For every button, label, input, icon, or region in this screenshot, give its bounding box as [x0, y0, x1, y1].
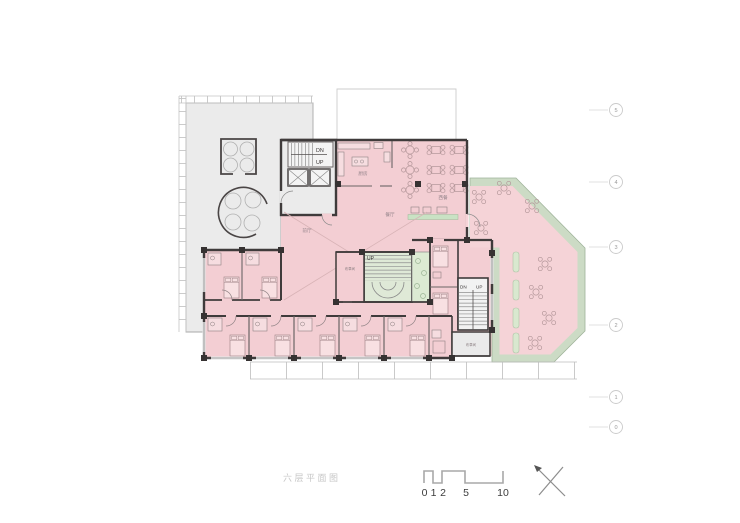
grid-bubble-label: 0: [614, 425, 617, 431]
service-room-right-label: 布草间: [466, 342, 477, 347]
grid-bubble-0: 0: [589, 421, 623, 434]
central-stair-up-label: UP: [367, 256, 375, 262]
upper-void-outline: [337, 89, 456, 140]
service-room-center: [336, 252, 364, 302]
grid-bubble-label: 4: [614, 180, 617, 186]
restaurant-label: 餐厅: [385, 211, 395, 218]
elevator-1: [288, 169, 308, 186]
floor-plan-sheet: DN UP 厨房: [0, 0, 740, 523]
central-stair-block: UP 布草间: [336, 252, 430, 303]
right-stair-dn-label: DN: [460, 285, 467, 290]
elevator-2: [310, 169, 330, 186]
grid-bubble-3: 3: [589, 241, 623, 254]
service-room-right: 布草间: [452, 332, 490, 356]
top-stair-up-label: UP: [316, 160, 324, 166]
grid-bubble-label: 1: [614, 395, 617, 401]
scale-tick-5: 5: [463, 487, 469, 499]
grid-bubbles: 5 4 3 2 1 0: [589, 104, 623, 434]
right-stair-up-label: UP: [476, 285, 482, 290]
drawing-title: 六层平面图: [283, 472, 341, 483]
grid-bubble-4: 4: [589, 176, 623, 189]
floor-plan-svg: DN UP 厨房: [0, 0, 740, 523]
top-stair-dn-label: DN: [316, 148, 324, 154]
grid-bubble-1: 1: [589, 391, 623, 404]
kitchen-label: 厨房: [358, 170, 368, 177]
scale-tick-0: 0: [422, 487, 428, 499]
western-restaurant-label: 西餐: [438, 194, 448, 201]
lobby-label: 前厅: [302, 227, 312, 234]
guest-room: [433, 293, 448, 314]
scale-tick-2: 2: [440, 487, 446, 499]
right-stair: DN UP: [458, 278, 488, 330]
grid-bubble-label: 2: [614, 323, 617, 329]
grid-bubble-label: 3: [614, 245, 617, 251]
grid-bubble-5: 5: [589, 104, 623, 117]
scale-tick-10: 10: [497, 487, 509, 499]
service-room-center-label: 布草间: [345, 266, 356, 271]
top-stair-core: DN UP: [280, 140, 336, 225]
scale-tick-1: 1: [431, 487, 437, 499]
scale-bar: 0 1 2 5 10: [422, 471, 509, 499]
canopy-band: [250, 362, 577, 379]
grid-bubble-2: 2: [589, 319, 623, 332]
grid-bubble-label: 5: [614, 108, 617, 114]
north-arrow-icon: [534, 465, 565, 496]
